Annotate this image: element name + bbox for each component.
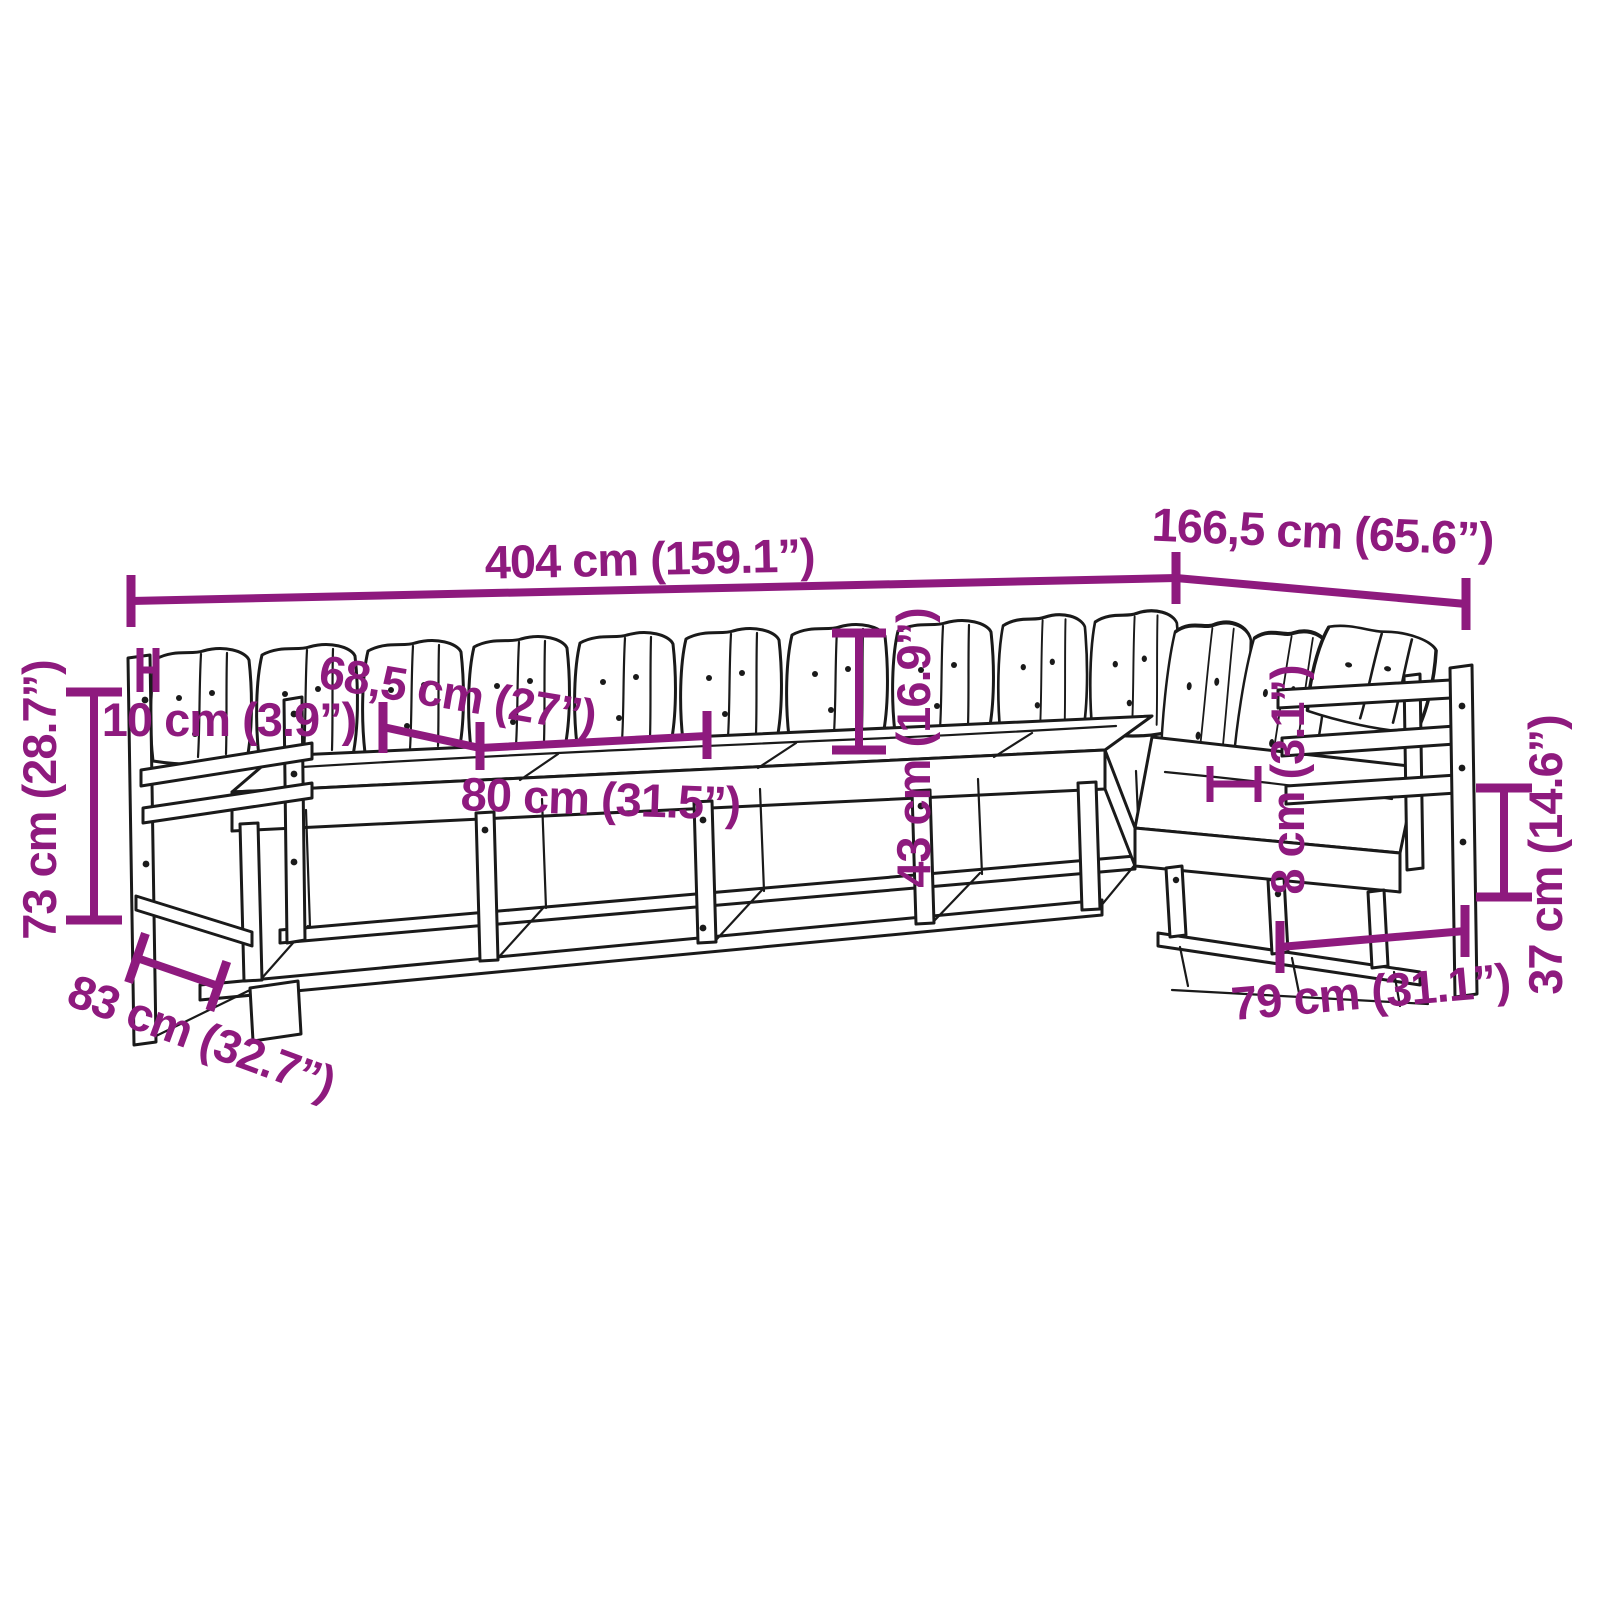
dim-total-length: 404 cm (159.1”): [131, 528, 1176, 627]
dim-label-seat-width: 80 cm (31.5”): [460, 767, 741, 830]
dim-underseat-clearance: 37 cm (14.6”): [1476, 715, 1572, 995]
sofa-dimension-diagram: 404 cm (159.1”) 166,5 cm (65.6”) 73 cm (…: [0, 0, 1600, 1600]
dim-label-backrest-height: 43 cm (16.9”): [887, 608, 940, 888]
dim-label-overall-height: 73 cm (28.7”): [13, 660, 66, 940]
dim-label-frame-thickness: 8 cm (3.1”): [1261, 665, 1314, 894]
dim-return-length: 166,5 cm (65.6”): [1151, 498, 1495, 630]
dim-label-end-module-width: 79 cm (31.1”): [1229, 953, 1512, 1030]
dim-label-cushion-thickness: 10 cm (3.9”): [102, 693, 356, 746]
diagram-canvas: 404 cm (159.1”) 166,5 cm (65.6”) 73 cm (…: [0, 0, 1600, 1600]
dim-label-return-length: 166,5 cm (65.6”): [1151, 498, 1495, 566]
dim-label-underseat-clearance: 37 cm (14.6”): [1519, 715, 1572, 995]
dim-label-total-length: 404 cm (159.1”): [484, 528, 815, 588]
